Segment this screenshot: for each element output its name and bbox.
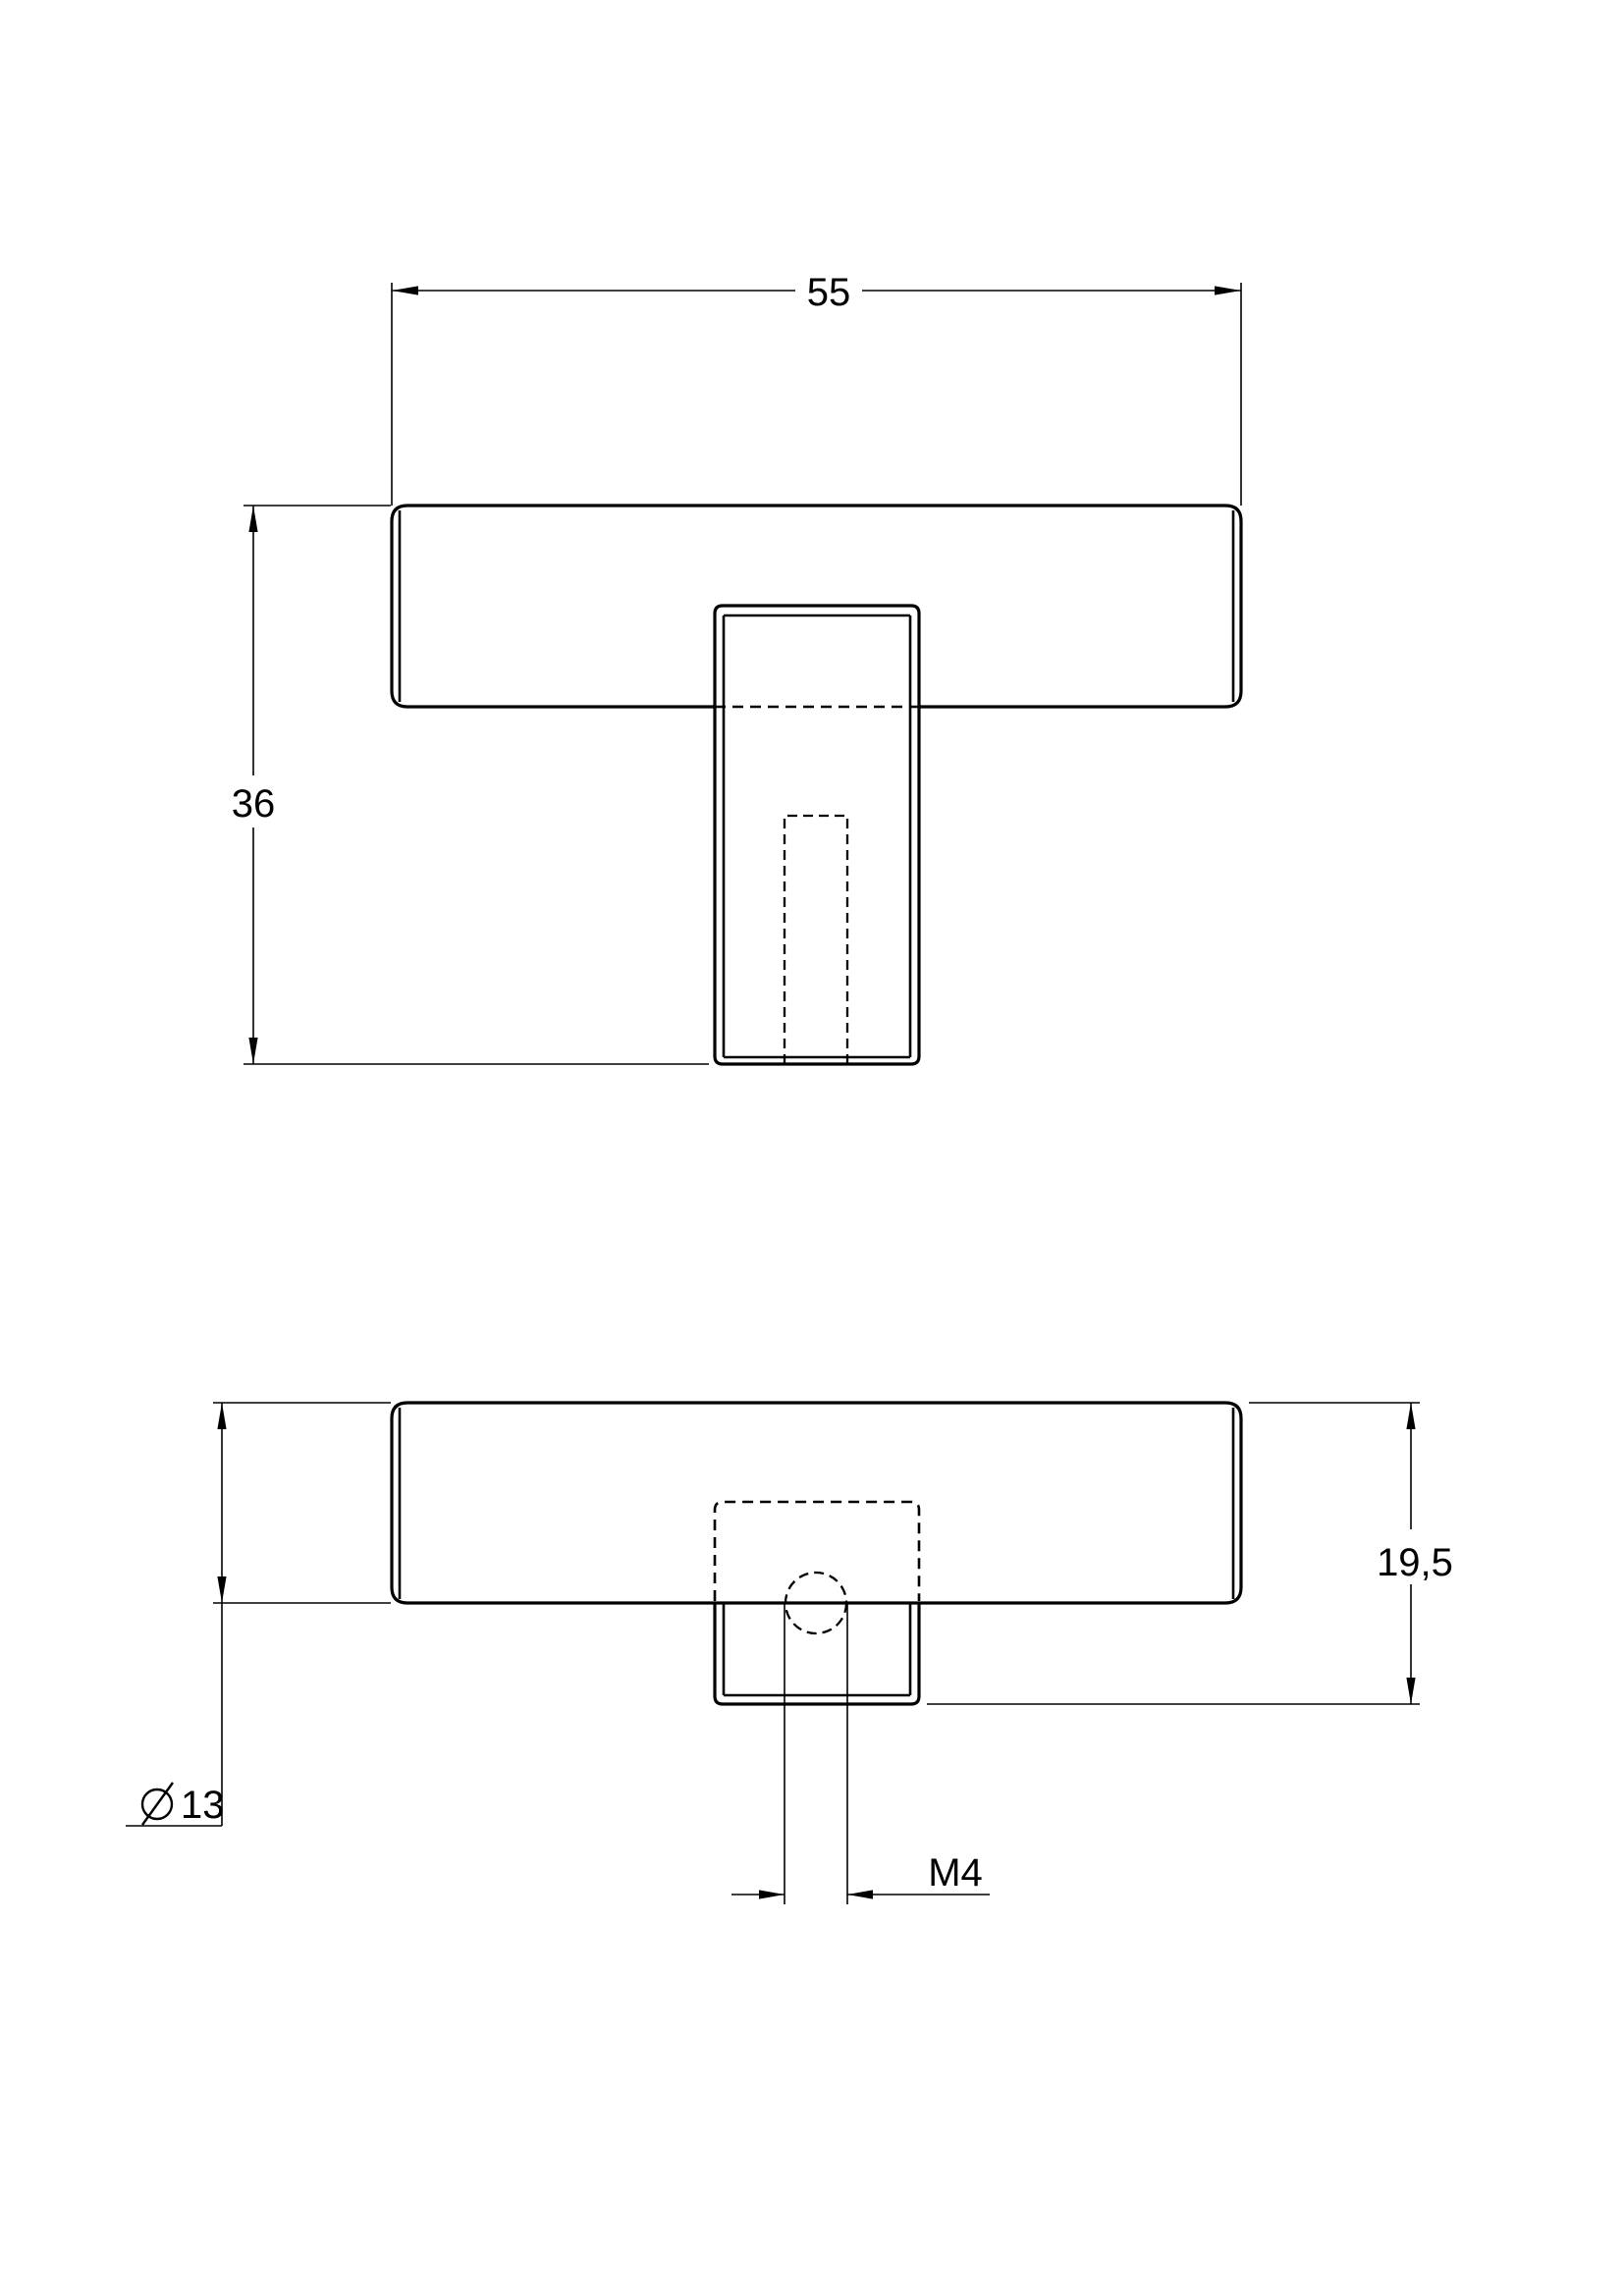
- dim-195-label: 19,5: [1377, 1541, 1453, 1584]
- drawing-canvas: 55 36 13 19,5 M4: [0, 0, 1624, 2296]
- page-background: [0, 0, 1624, 2296]
- technical-drawing: 55 36 13 19,5 M4: [0, 0, 1624, 2296]
- dim-m4-label: M4: [928, 1851, 983, 1895]
- dim-36-label: 36: [232, 782, 276, 826]
- dim-55-label: 55: [807, 271, 851, 314]
- dim-13-label: 13: [181, 1784, 225, 1827]
